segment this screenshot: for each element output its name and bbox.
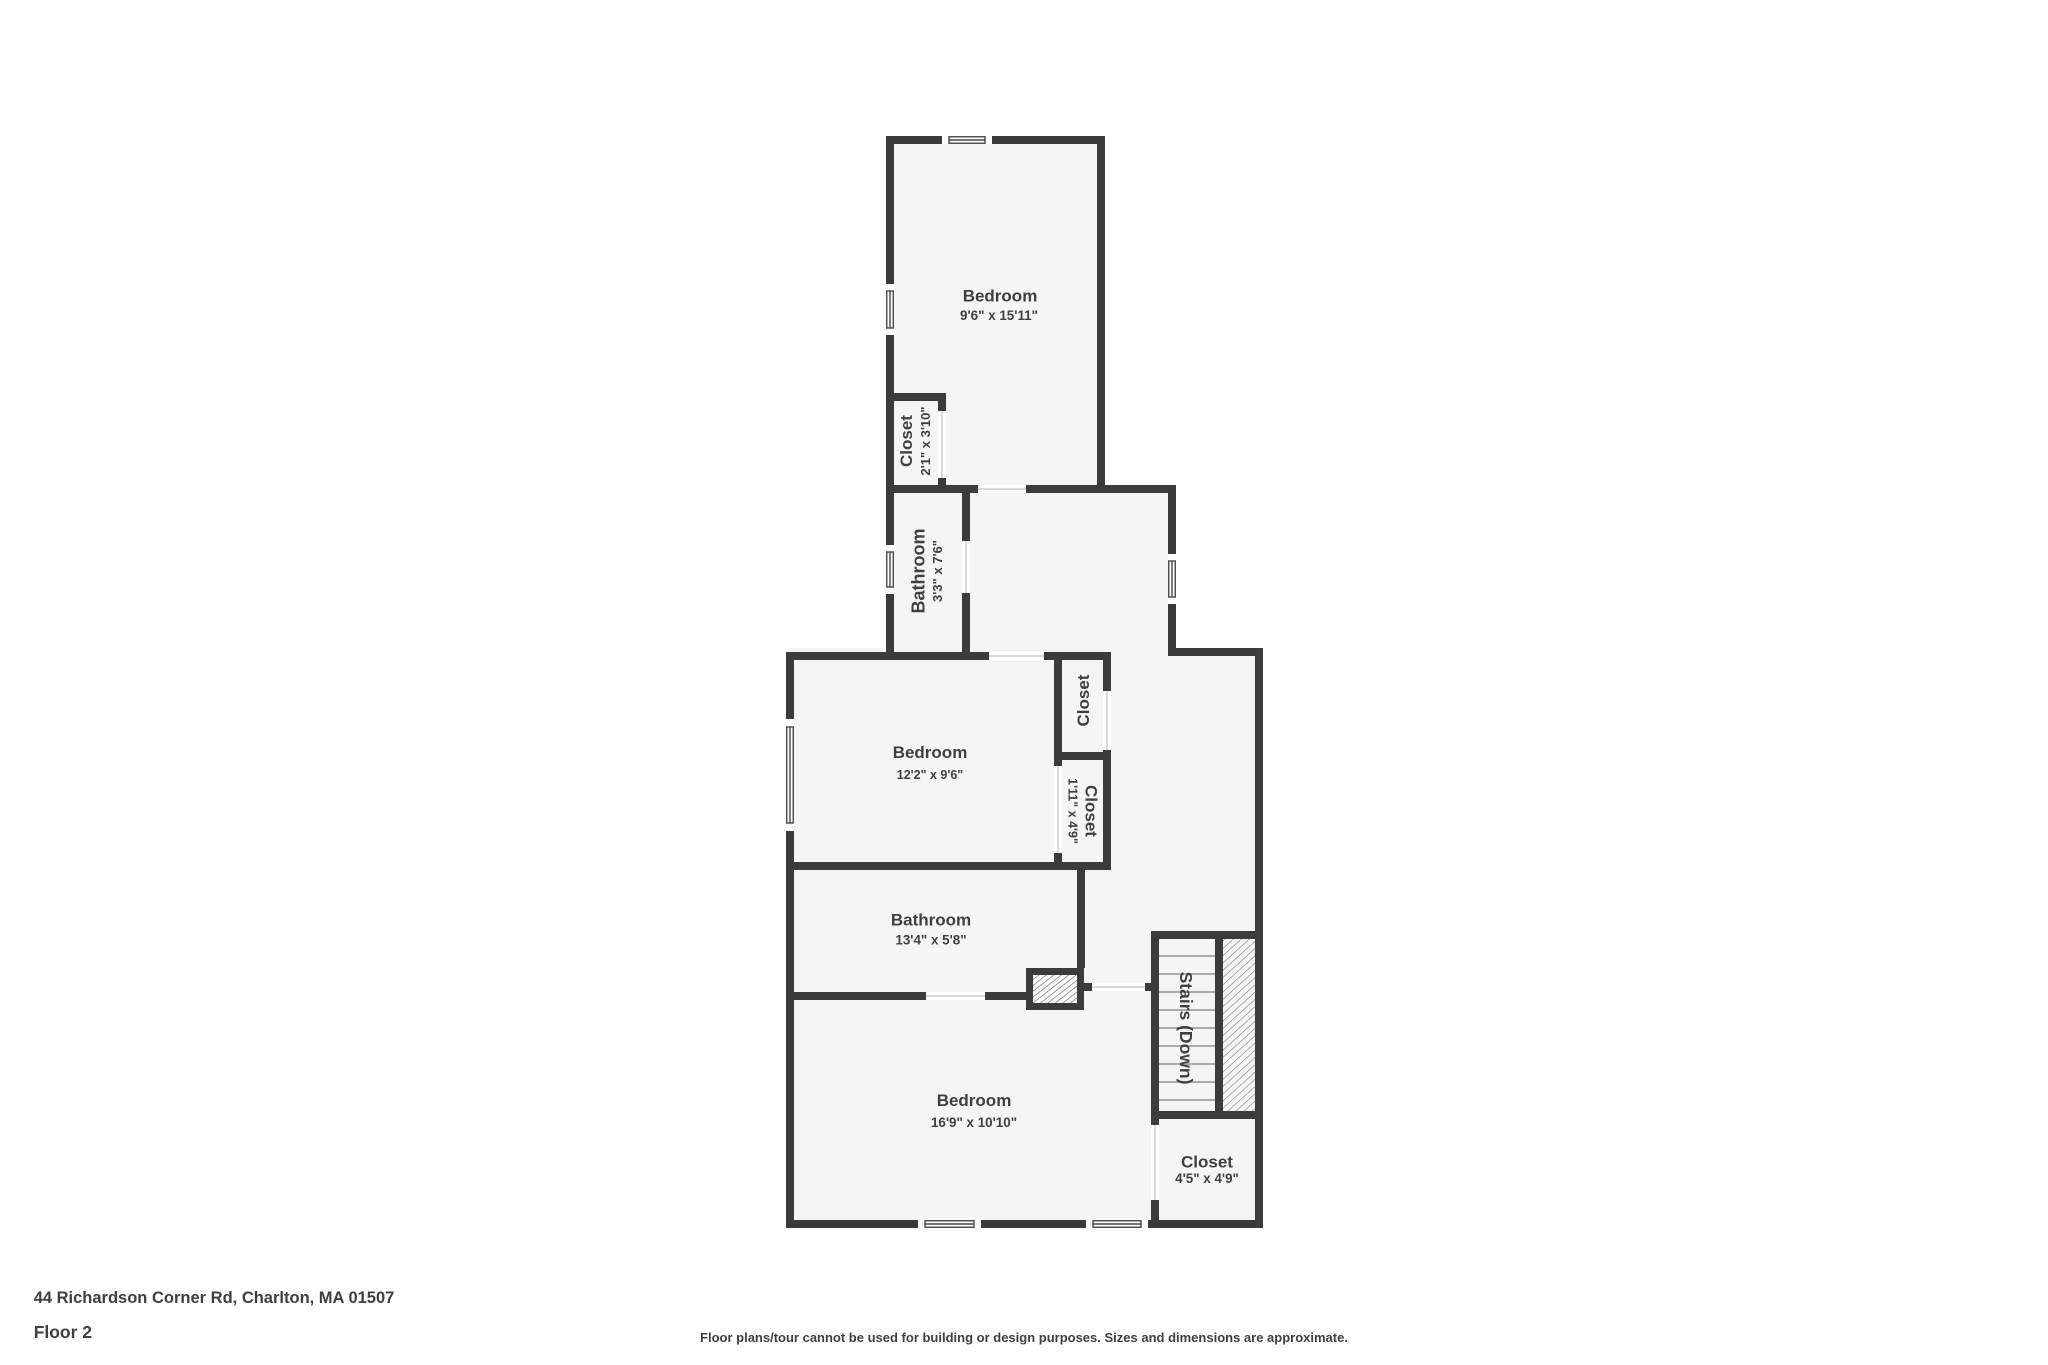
svg-text:9'6" x 15'11": 9'6" x 15'11" [960, 308, 1038, 323]
svg-text:Bedroom: Bedroom [893, 743, 968, 762]
svg-text:1'11" x 4'9": 1'11" x 4'9" [1065, 778, 1079, 844]
svg-text:44 Richardson Corner Rd, Charl: 44 Richardson Corner Rd, Charlton, MA 01… [34, 1289, 395, 1307]
svg-text:Floor plans/tour cannot be use: Floor plans/tour cannot be used for buil… [700, 1330, 1348, 1345]
svg-text:Stairs (Down): Stairs (Down) [1176, 972, 1196, 1085]
svg-text:Closet: Closet [1082, 785, 1101, 837]
svg-text:Bedroom: Bedroom [963, 287, 1038, 306]
svg-text:Floor 2: Floor 2 [34, 1322, 93, 1342]
svg-text:Bathroom: Bathroom [909, 529, 929, 614]
svg-text:Closet: Closet [1074, 674, 1093, 726]
svg-text:3'3" x 7'6": 3'3" x 7'6" [930, 540, 945, 602]
svg-text:13'4" x 5'8": 13'4" x 5'8" [895, 933, 966, 948]
svg-text:Closet: Closet [897, 415, 916, 467]
svg-text:Bathroom: Bathroom [891, 911, 971, 930]
svg-text:Bedroom: Bedroom [937, 1091, 1012, 1110]
svg-text:4'5" x 4'9": 4'5" x 4'9" [1175, 1171, 1239, 1186]
svg-text:16'9" x 10'10": 16'9" x 10'10" [931, 1115, 1017, 1130]
svg-text:Closet: Closet [1181, 1153, 1233, 1172]
svg-text:12'2" x 9'6": 12'2" x 9'6" [897, 768, 964, 782]
svg-text:2'1" x 3'10": 2'1" x 3'10" [918, 406, 933, 475]
